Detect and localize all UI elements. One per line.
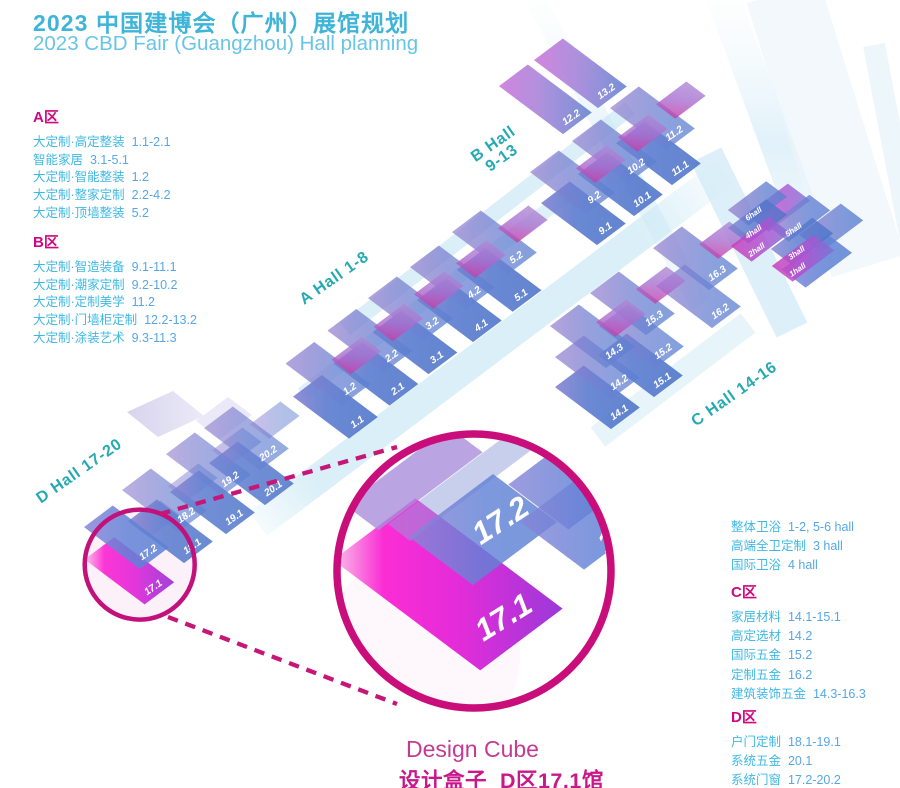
svg-text:A Hall 1-8: A Hall 1-8	[297, 248, 373, 308]
svg-text:D Hall 17-20: D Hall 17-20	[33, 436, 125, 507]
